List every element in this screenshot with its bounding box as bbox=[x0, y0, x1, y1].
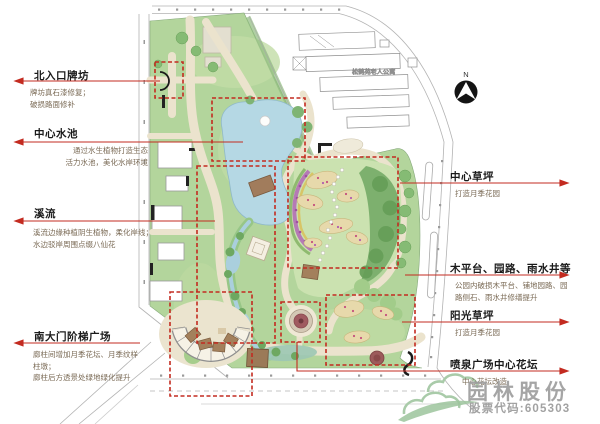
annotation-desc: 公园内破损木平台、铺地园路、园 路侧石、雨水井修缮提升 bbox=[455, 280, 585, 303]
annotation-title: 阳光草坪 bbox=[450, 308, 494, 323]
annotation-central-lawn: 中心草坪 bbox=[450, 169, 494, 184]
fountain bbox=[285, 305, 317, 337]
annotation-south-gate-plaza: 南大门阶梯广场 bbox=[34, 329, 111, 344]
annotation-title: 中心草坪 bbox=[450, 169, 494, 184]
annotation-title: 北入口牌坊 bbox=[34, 68, 89, 83]
compass: N bbox=[455, 70, 478, 104]
amphitheater bbox=[159, 300, 253, 368]
annotation-desc: 通过水生植物打造生态 活力水池，美化水岸环境 bbox=[8, 145, 148, 168]
annotation-title: 溪流 bbox=[34, 206, 56, 221]
annotation-desc: 溪流边缘种植阴生植物，柔化岸线； 水边驳岸周围点缀八仙花 bbox=[33, 227, 168, 250]
annotation-desc: 牌坊真石漆修复； 破损路面修补 bbox=[30, 87, 160, 110]
annotation-title: 木平台、园路、雨水井等 bbox=[450, 261, 571, 276]
annotation-desc: 廊柱间增加月季花坛、月季纹样 柱墩； 廊柱后方透景处绿地绿化提升 bbox=[33, 349, 165, 384]
annotation-wood-platform: 木平台、园路、雨水井等 bbox=[450, 261, 571, 276]
annotation-sunshine-lawn: 阳光草坪 bbox=[450, 308, 494, 323]
annotation-desc: 打造月季花园 bbox=[455, 188, 575, 200]
adjacent-building-label: 松鹤苑老人公寓 bbox=[352, 68, 395, 76]
annotation-stream: 溪流 bbox=[34, 206, 56, 221]
annotation-title: 喷泉广场中心花坛 bbox=[450, 357, 538, 372]
annotation-desc: 打造月季花园 bbox=[455, 327, 575, 339]
roadside-islands bbox=[422, 162, 438, 298]
annotation-title: 中心水池 bbox=[34, 126, 78, 141]
annotation-central-pool: 中心水池 bbox=[34, 126, 78, 141]
annotation-north-entrance: 北入口牌坊 bbox=[34, 68, 89, 83]
annotation-title: 南大门阶梯广场 bbox=[34, 329, 111, 344]
annotation-fountain-flowerbed: 喷泉广场中心花坛 bbox=[450, 357, 538, 372]
watermark-stock-code: 股票代码:605303 bbox=[469, 400, 570, 416]
landscape-plan-canvas: 松鹤苑老人公寓 bbox=[0, 0, 600, 424]
compass-north-label: N bbox=[463, 70, 468, 79]
